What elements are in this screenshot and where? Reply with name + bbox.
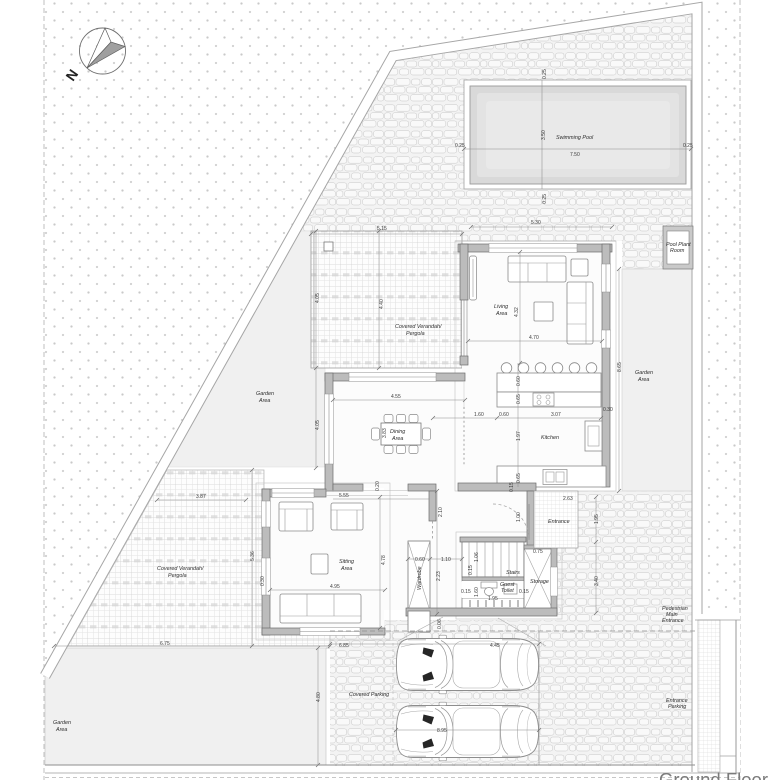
svg-text:5.30: 5.30 [531, 220, 541, 226]
svg-text:2.10: 2.10 [438, 507, 444, 517]
svg-text:1.60: 1.60 [474, 587, 480, 597]
svg-text:1.10: 1.10 [441, 557, 451, 563]
svg-text:5.55: 5.55 [339, 493, 349, 499]
svg-text:4.05: 4.05 [315, 293, 321, 303]
svg-text:Ground Floor: Ground Floor [659, 769, 768, 780]
svg-text:1.60: 1.60 [474, 412, 484, 418]
svg-text:3.83: 3.83 [382, 428, 388, 438]
svg-text:2.63: 2.63 [563, 496, 573, 502]
svg-text:0.20: 0.20 [375, 481, 381, 491]
svg-text:Entrance: Entrance [662, 618, 684, 624]
svg-text:4.05: 4.05 [315, 420, 321, 430]
svg-text:0.60: 0.60 [516, 376, 522, 386]
svg-text:1.95: 1.95 [594, 514, 600, 524]
svg-text:Room: Room [670, 248, 685, 254]
svg-text:Parking: Parking [668, 704, 686, 710]
svg-text:Garden: Garden [256, 391, 274, 397]
svg-text:4.95: 4.95 [330, 584, 340, 590]
svg-text:Swimming Pool: Swimming Pool [556, 135, 594, 141]
svg-text:Toilet: Toilet [501, 588, 514, 594]
svg-text:0.25: 0.25 [542, 69, 548, 79]
svg-text:4.70: 4.70 [529, 335, 539, 341]
svg-text:8.65: 8.65 [617, 362, 623, 372]
svg-text:1.00: 1.00 [516, 512, 522, 522]
svg-text:Covered Parking: Covered Parking [349, 692, 389, 698]
svg-text:Covered Verandah/: Covered Verandah/ [157, 566, 204, 572]
svg-text:0.15: 0.15 [461, 589, 471, 595]
svg-text:8.95: 8.95 [437, 728, 447, 734]
svg-text:Pergola: Pergola [168, 573, 187, 579]
svg-text:3.07: 3.07 [551, 412, 561, 418]
svg-text:Stairs: Stairs [506, 570, 520, 576]
svg-text:4.40: 4.40 [379, 299, 385, 309]
svg-text:4.45: 4.45 [490, 643, 500, 649]
svg-text:Sitting: Sitting [339, 559, 354, 565]
svg-text:Area: Area [258, 398, 270, 404]
svg-text:6.75: 6.75 [160, 641, 170, 647]
svg-text:0.25: 0.25 [455, 143, 465, 149]
svg-text:Area: Area [495, 311, 507, 317]
svg-text:0.06: 0.06 [437, 619, 443, 629]
svg-text:0.30: 0.30 [260, 576, 266, 586]
svg-text:4.55: 4.55 [391, 394, 401, 400]
svg-text:Pergola: Pergola [406, 331, 425, 337]
svg-text:3.40: 3.40 [594, 576, 600, 586]
svg-text:0.65: 0.65 [516, 473, 522, 483]
svg-text:Area: Area [55, 727, 67, 733]
svg-text:Storage: Storage [530, 579, 549, 585]
svg-text:Wardrobe: Wardrobe [417, 566, 423, 590]
svg-text:0.30: 0.30 [603, 407, 613, 413]
svg-text:3.87: 3.87 [196, 494, 206, 500]
svg-text:1.06: 1.06 [474, 552, 480, 562]
svg-text:Area: Area [637, 377, 649, 383]
svg-text:0.65: 0.65 [516, 394, 522, 404]
svg-text:Garden: Garden [53, 720, 71, 726]
svg-text:Kitchen: Kitchen [541, 435, 559, 441]
svg-text:0.75: 0.75 [533, 549, 543, 555]
svg-text:6.85: 6.85 [339, 643, 349, 649]
svg-text:0.15: 0.15 [509, 482, 515, 492]
svg-text:2.23: 2.23 [436, 571, 442, 581]
svg-text:Area: Area [340, 566, 352, 572]
svg-text:4.80: 4.80 [316, 692, 322, 702]
svg-text:3.50: 3.50 [541, 130, 547, 140]
svg-text:0.25: 0.25 [542, 194, 548, 204]
svg-text:Garden: Garden [635, 370, 653, 376]
svg-text:0.60: 0.60 [415, 557, 425, 563]
svg-text:7.50: 7.50 [570, 152, 580, 158]
svg-text:0.15: 0.15 [519, 589, 529, 595]
svg-text:0.15: 0.15 [468, 565, 474, 575]
svg-text:1.97: 1.97 [516, 431, 522, 441]
svg-text:Living: Living [494, 304, 508, 310]
svg-text:Covered Verandah/: Covered Verandah/ [395, 324, 442, 330]
svg-text:4.78: 4.78 [381, 555, 387, 565]
svg-text:0.60: 0.60 [499, 412, 509, 418]
svg-text:Area: Area [391, 436, 403, 442]
svg-text:1.95: 1.95 [488, 596, 498, 602]
svg-text:Dining: Dining [390, 429, 405, 435]
svg-text:4.32: 4.32 [514, 307, 520, 317]
svg-text:Entrance: Entrance [548, 519, 570, 525]
svg-text:5.36: 5.36 [250, 551, 256, 561]
